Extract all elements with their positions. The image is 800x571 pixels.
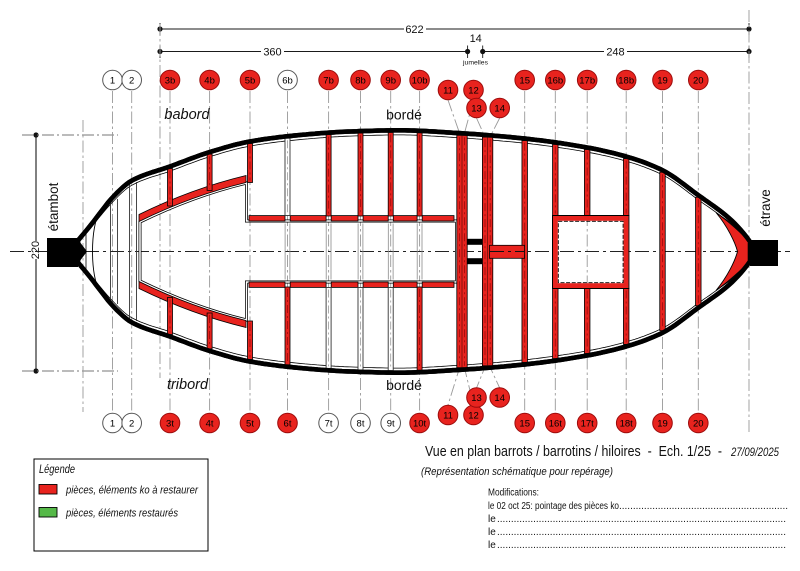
svg-text:pièces, éléments restaurés: pièces, éléments restaurés [65, 508, 178, 520]
svg-text:17t: 17t [581, 418, 595, 429]
svg-text:9b: 9b [385, 75, 396, 86]
svg-text:1: 1 [110, 75, 115, 86]
svg-text:14: 14 [494, 103, 505, 114]
svg-text:..............................: ........................................… [619, 501, 788, 512]
svg-text:pièces, éléments ko à restaure: pièces, éléments ko à restaurer [65, 485, 199, 497]
svg-text:tribord: tribord [167, 377, 209, 393]
svg-text:8t: 8t [357, 418, 365, 429]
svg-text:11: 11 [443, 410, 453, 421]
svg-text:3t: 3t [166, 418, 174, 429]
svg-text:15: 15 [519, 418, 530, 429]
svg-text:le: le [488, 527, 496, 538]
svg-text:12: 12 [468, 410, 479, 421]
svg-text:étrave: étrave [758, 189, 773, 227]
svg-text:le: le [488, 514, 496, 525]
svg-text:étambot: étambot [46, 182, 61, 231]
svg-text:13: 13 [471, 103, 482, 114]
svg-text:4b: 4b [204, 75, 215, 86]
svg-text:6b: 6b [282, 75, 293, 86]
svg-text:5b: 5b [245, 75, 256, 86]
svg-text:jumelles: jumelles [462, 60, 489, 67]
svg-text:..............................: ........................................… [497, 527, 786, 538]
svg-text:20: 20 [693, 418, 704, 429]
svg-text:15: 15 [519, 75, 530, 86]
svg-text:9t: 9t [387, 418, 395, 429]
svg-text:le: le [488, 540, 496, 551]
svg-text:14: 14 [470, 33, 482, 45]
svg-text:17b: 17b [579, 75, 595, 86]
svg-text:7t: 7t [325, 418, 333, 429]
svg-text:10b: 10b [412, 75, 428, 86]
svg-text:18t: 18t [620, 418, 634, 429]
svg-text:3b: 3b [165, 75, 176, 86]
svg-text:10t: 10t [413, 418, 427, 429]
svg-text:19: 19 [657, 75, 668, 86]
svg-text:Vue en plan barrots / barrotin: Vue en plan barrots / barrotins / hiloir… [425, 443, 722, 460]
svg-text:..............................: ........................................… [497, 514, 786, 525]
svg-text:Légende: Légende [39, 464, 75, 476]
svg-text:16t: 16t [549, 418, 563, 429]
svg-text:le 02 oct 25: pointage des piè: le 02 oct 25: pointage des pièces ko [488, 501, 619, 512]
svg-text:248: 248 [606, 47, 624, 59]
svg-text:6t: 6t [284, 418, 292, 429]
svg-text:7b: 7b [323, 75, 334, 86]
svg-text:220: 220 [30, 241, 42, 259]
svg-text:1: 1 [110, 418, 115, 429]
svg-text:12: 12 [468, 85, 479, 96]
svg-text:Modifications:: Modifications: [488, 488, 539, 499]
svg-text:20: 20 [693, 75, 704, 86]
svg-text:622: 622 [405, 24, 423, 36]
svg-text:11: 11 [443, 85, 453, 96]
svg-text:4t: 4t [206, 418, 214, 429]
svg-text:2: 2 [129, 75, 134, 86]
svg-text:(Représentation schématique po: (Représentation schématique pour repérag… [421, 466, 613, 478]
svg-text:360: 360 [263, 47, 281, 59]
svg-text:2: 2 [129, 418, 134, 429]
svg-text:14: 14 [494, 393, 505, 404]
svg-text:16b: 16b [547, 75, 563, 86]
svg-text:27/09/2025: 27/09/2025 [730, 447, 779, 459]
svg-text:bordé: bordé [386, 377, 422, 393]
svg-text:..............................: ........................................… [497, 540, 786, 551]
svg-text:5t: 5t [246, 418, 254, 429]
svg-text:18b: 18b [618, 75, 634, 86]
svg-text:13: 13 [471, 393, 482, 404]
svg-text:19: 19 [657, 418, 668, 429]
svg-text:8b: 8b [355, 75, 366, 86]
svg-text:babord: babord [164, 107, 210, 123]
svg-text:bordé: bordé [386, 107, 422, 123]
